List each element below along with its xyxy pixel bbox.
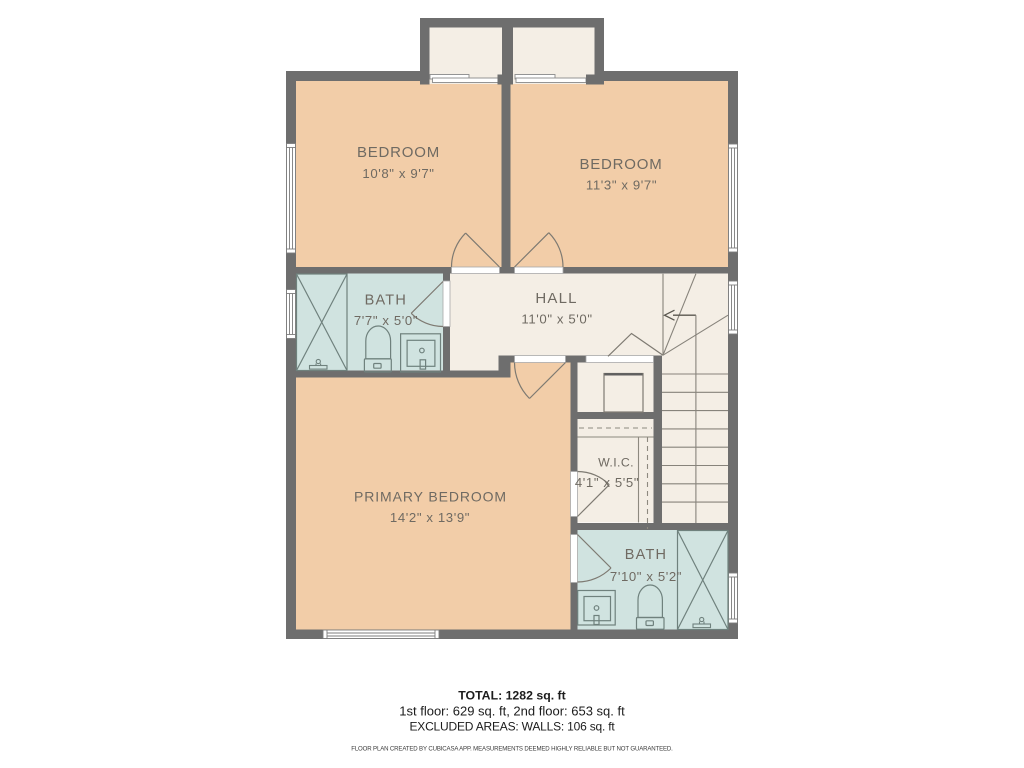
svg-text:14'2" x 13'9": 14'2" x 13'9" [390, 510, 470, 525]
svg-text:W.I.C.: W.I.C. [598, 456, 634, 470]
svg-text:11'3" x 9'7": 11'3" x 9'7" [586, 178, 657, 193]
svg-text:4'1" x 5'5": 4'1" x 5'5" [575, 475, 639, 490]
svg-text:BEDROOM: BEDROOM [579, 156, 662, 173]
svg-text:BATH: BATH [365, 293, 407, 309]
svg-text:10'8" x 9'7": 10'8" x 9'7" [362, 166, 434, 181]
svg-text:1st floor: 629 sq. ft, 2nd flo: 1st floor: 629 sq. ft, 2nd floor: 653 sq… [399, 704, 625, 719]
svg-text:FLOOR PLAN CREATED BY CUBICASA: FLOOR PLAN CREATED BY CUBICASA APP. MEAS… [351, 746, 673, 753]
svg-text:7'10" x 5'2": 7'10" x 5'2" [610, 569, 682, 584]
svg-text:11'0" x 5'0": 11'0" x 5'0" [521, 312, 592, 327]
svg-text:BEDROOM: BEDROOM [357, 144, 440, 161]
svg-text:PRIMARY BEDROOM: PRIMARY BEDROOM [354, 489, 507, 505]
svg-text:7'7" x 5'0": 7'7" x 5'0" [354, 313, 418, 328]
svg-text:HALL: HALL [535, 290, 577, 307]
svg-text:TOTAL: 1282 sq. ft: TOTAL: 1282 sq. ft [458, 689, 566, 703]
svg-text:BATH: BATH [625, 547, 667, 563]
svg-text:EXCLUDED AREAS: WALLS: 106 sq.: EXCLUDED AREAS: WALLS: 106 sq. ft [409, 720, 615, 734]
